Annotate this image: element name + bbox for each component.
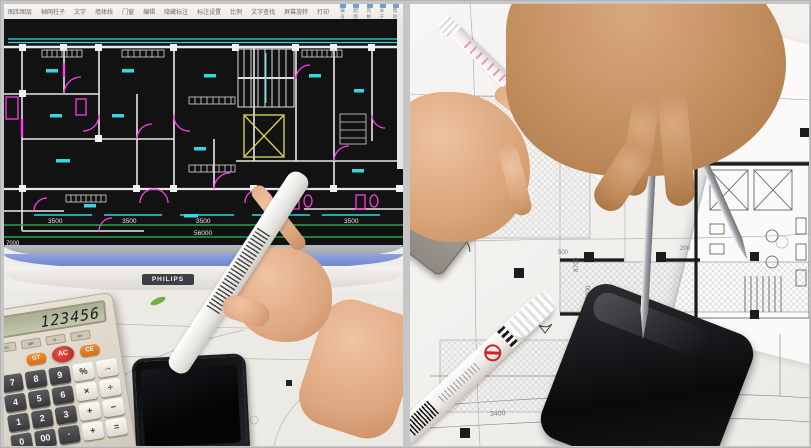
calc-key[interactable]: 5: [28, 389, 51, 409]
calc-key[interactable]: 00: [34, 428, 57, 446]
composite-photo: 图库图层 轴网柱子 文字 墙体线 门窗 编辑 隐藏标注 标注设置 比例 文字查找…: [0, 0, 811, 448]
monitor-screen-cad-floorplan: 3500 3500 3500 3500 3500 56000 7000: [4, 19, 403, 247]
calc-key[interactable]: 3: [54, 405, 77, 425]
calc-key[interactable]: 9: [48, 365, 71, 385]
menu-item[interactable]: 编辑: [143, 7, 155, 16]
dim-label: 500: [558, 250, 569, 256]
dim-label: 3500: [122, 218, 137, 225]
memory-key[interactable]: MC: [4, 341, 17, 353]
calc-key[interactable]: 7: [4, 373, 24, 393]
toolbar-button[interactable]: 配图: [353, 4, 359, 20]
menu-item[interactable]: 标注设置: [197, 7, 221, 16]
calc-key[interactable]: 4: [4, 393, 27, 413]
ce-key[interactable]: CE: [79, 343, 100, 357]
phone-screen: [141, 365, 241, 446]
menu-item[interactable]: 轴网柱子: [41, 7, 65, 16]
calc-key[interactable]: ·: [58, 425, 81, 445]
dim-label-vertical: 8700: [573, 257, 580, 272]
calc-key[interactable]: 0: [10, 432, 33, 446]
dim-label: 3400: [490, 410, 506, 418]
cad-columns: [19, 44, 403, 192]
dim-label: 3500: [48, 218, 63, 225]
menu-item[interactable]: 门窗: [122, 7, 134, 16]
dim-label: 3500: [344, 218, 359, 225]
monitor-right-bezel: [397, 19, 403, 169]
cad-stairs: [238, 49, 294, 107]
left-photo-cad-workstation: 图库图层 轴网柱子 文字 墙体线 门窗 编辑 隐藏标注 标注设置 比例 文字查找…: [4, 4, 403, 446]
calculator-keypad: 7 8 9 % → 4 5 6 × ÷ 1 2 3 + − 0 00 · + =: [4, 358, 127, 446]
gt-key[interactable]: GT: [26, 351, 47, 365]
menu-item[interactable]: 文字查找: [251, 7, 275, 16]
calc-key[interactable]: 2: [31, 409, 54, 429]
menu-item[interactable]: 屏幕旋转: [284, 7, 308, 16]
calc-key[interactable]: 8: [24, 369, 47, 389]
cad-furniture: [42, 50, 366, 202]
ac-key[interactable]: AC: [51, 345, 75, 364]
calc-key[interactable]: =: [105, 417, 128, 437]
calc-key[interactable]: +: [81, 421, 104, 441]
calc-key[interactable]: −: [102, 397, 125, 417]
dim-label: 3500: [196, 218, 211, 225]
menu-item[interactable]: 隐藏标注: [164, 7, 188, 16]
cad-menubar: 图库图层 轴网柱子 文字 墙体线 门窗 编辑 隐藏标注 标注设置 比例 文字查找…: [4, 4, 403, 19]
toolbar-button[interactable]: 编号: [340, 4, 346, 20]
memory-key[interactable]: MR: [20, 338, 41, 350]
menu-item[interactable]: 比例: [230, 7, 242, 16]
menu-item[interactable]: 图库图层: [8, 7, 32, 16]
calc-key[interactable]: →: [96, 358, 119, 378]
menubar-tool-icons: 编号 配图 风格 关于 帮助: [340, 4, 399, 20]
right-photo-blueprint-desk: 3400 9000 30700 500 200 8700 2000 0 0 1 …: [410, 4, 809, 446]
smartphone: [131, 353, 250, 446]
toolbar-button[interactable]: 帮助: [393, 4, 399, 20]
dim-label: 200: [680, 246, 691, 252]
calc-key[interactable]: %: [72, 362, 95, 382]
calc-key[interactable]: ×: [75, 381, 98, 401]
toolbar-button[interactable]: 关于: [380, 4, 386, 20]
toolbar-button[interactable]: 风格: [367, 4, 373, 20]
calc-key[interactable]: +: [78, 401, 101, 421]
memory-key[interactable]: M+: [70, 330, 91, 342]
cad-floorplan-drawing: 3500 3500 3500 3500 3500 56000 7000: [4, 19, 403, 247]
menu-item[interactable]: 文字: [74, 7, 86, 16]
menu-item[interactable]: 墙体线: [95, 7, 113, 16]
cad-dimension-lines-top: [8, 39, 399, 43]
calc-key[interactable]: 1: [7, 412, 30, 432]
dim-total-label: 56000: [194, 230, 212, 237]
calc-key[interactable]: ÷: [99, 378, 122, 398]
monitor-bottom-bezel: [4, 266, 403, 292]
cad-elevator: [244, 115, 284, 157]
menu-item[interactable]: 打印: [317, 7, 329, 16]
calc-key[interactable]: 6: [51, 385, 74, 405]
monitor-brand-logo: PHILIPS: [142, 274, 194, 285]
memory-key[interactable]: M−: [45, 334, 66, 346]
